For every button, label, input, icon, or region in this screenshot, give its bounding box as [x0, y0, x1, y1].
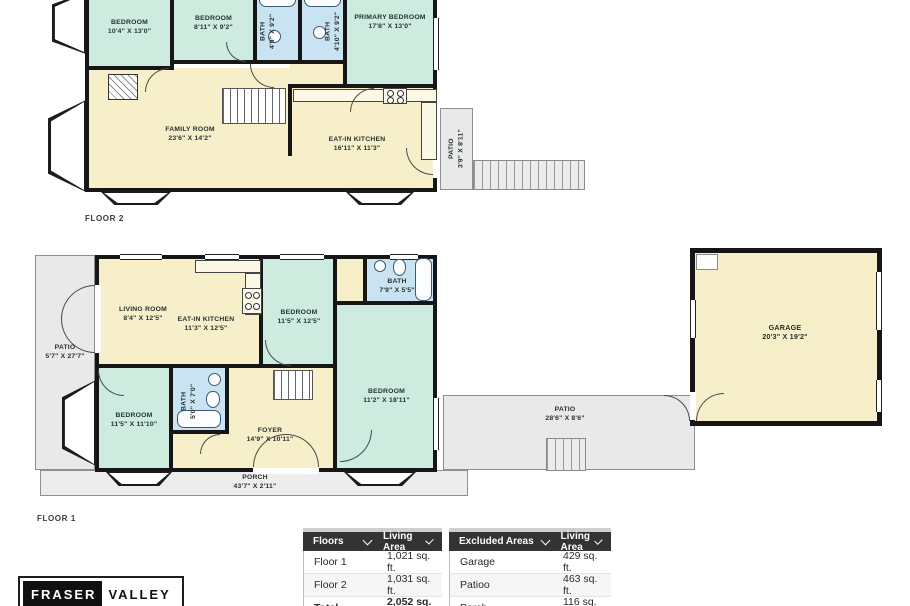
row-value: 429 sq. ft.	[546, 550, 603, 574]
burner-icon	[245, 303, 252, 310]
excluded-areas-table: Excluded Areas Living Area Garage 429 sq…	[449, 528, 611, 606]
window-icon	[120, 254, 162, 260]
stove-icon	[383, 88, 407, 104]
excluded-areas-header-label: Excluded Areas	[459, 536, 534, 547]
floors-table-header: Floors Living Area	[303, 532, 442, 551]
row-label: Floor 2	[314, 579, 376, 591]
window-icon	[390, 254, 418, 260]
floors-header-cell[interactable]: Floors	[313, 536, 373, 547]
bay-window-icon	[100, 191, 172, 205]
table-row-total: Total 2,052 sq. ft.	[303, 597, 442, 606]
wall	[288, 84, 437, 88]
window-icon	[433, 18, 439, 70]
chevron-down-icon[interactable]	[595, 536, 603, 544]
floor2-caption: FLOOR 2	[85, 214, 124, 223]
logo-part2: VALLEY	[102, 581, 178, 606]
door-opening	[95, 285, 101, 353]
bay-window-icon	[345, 191, 415, 205]
window-icon	[433, 398, 439, 450]
table-row: Floor 1 1,021 sq. ft.	[303, 551, 442, 574]
bathtub-icon	[304, 0, 341, 7]
toilet-icon	[206, 391, 220, 408]
burner-icon	[387, 97, 394, 104]
wall	[288, 88, 292, 156]
floor1-stairs	[273, 370, 313, 400]
bay-window-glass	[54, 0, 84, 52]
bay-window-glass	[347, 193, 413, 203]
wall	[298, 0, 302, 62]
burner-icon	[397, 97, 404, 104]
floor2-stairs	[222, 88, 286, 124]
row-label: Garage	[460, 556, 546, 568]
bay-window-icon	[48, 100, 86, 192]
logo-part1: FRASER	[23, 581, 102, 606]
row-value: 1,031 sq. ft.	[376, 573, 434, 597]
wall	[253, 0, 257, 62]
bay-window-glass	[64, 382, 94, 464]
bay-window-glass	[50, 102, 84, 190]
table-row: Floor 2 1,031 sq. ft.	[303, 574, 442, 597]
floorplan-page: BEDROOM 10'4" X 13'0" BEDROOM 8'11" X 9'…	[0, 0, 910, 606]
wall	[171, 430, 229, 434]
chevron-down-icon[interactable]	[540, 535, 550, 545]
floor2-patio	[440, 108, 473, 190]
sink-icon	[374, 260, 386, 272]
excluded-areas-header-cell[interactable]: Excluded Areas	[459, 536, 551, 547]
wall	[170, 0, 174, 68]
chevron-down-icon[interactable]	[425, 536, 434, 545]
floor1-caption: FLOOR 1	[37, 514, 76, 523]
wall	[337, 301, 437, 305]
burner-icon	[253, 292, 260, 299]
floor1-closet	[336, 255, 365, 303]
bathtub-icon	[259, 0, 296, 7]
toilet-icon	[393, 259, 406, 276]
burner-icon	[387, 90, 394, 97]
bay-window-icon	[52, 0, 86, 54]
door-opening	[253, 468, 319, 474]
wall	[95, 364, 337, 368]
bathtub-icon	[177, 410, 221, 428]
sink-icon	[268, 30, 281, 43]
row-value: 116 sq. ft.	[546, 596, 603, 606]
burner-icon	[253, 303, 260, 310]
row-label: Total	[314, 602, 376, 606]
bay-window-glass	[107, 473, 171, 484]
stove-icon	[242, 288, 262, 314]
window-icon	[690, 300, 696, 338]
table-row: Porch 116 sq. ft.	[449, 597, 611, 606]
door-opening	[690, 392, 696, 420]
window-icon	[876, 380, 882, 412]
excluded-table-header: Excluded Areas Living Area	[449, 532, 611, 551]
row-label: Floor 1	[314, 556, 376, 568]
row-label: Patioo	[460, 579, 546, 591]
floor2-primary-bedroom-room	[345, 0, 437, 88]
wall	[343, 0, 347, 88]
kitchen-counter	[195, 260, 261, 273]
sink-icon	[313, 26, 326, 39]
burner-icon	[397, 90, 404, 97]
bay-window-glass	[345, 473, 415, 484]
window-icon	[876, 272, 882, 330]
window-icon	[280, 254, 324, 260]
area-summary-table: Floors Living Area Floor 1 1,021 sq. ft.…	[303, 528, 611, 606]
fireplace-icon	[108, 74, 138, 100]
row-label: Porch	[460, 602, 546, 606]
row-value: 463 sq. ft.	[546, 573, 603, 597]
floors-table: Floors Living Area Floor 1 1,021 sq. ft.…	[303, 528, 442, 606]
table-row: Patioo 463 sq. ft.	[449, 574, 611, 597]
wall	[333, 255, 337, 470]
floors-header-label: Floors	[313, 536, 344, 547]
burner-icon	[245, 292, 252, 299]
sink-icon	[208, 373, 221, 386]
wall	[225, 366, 229, 434]
garage-corner-box	[696, 254, 718, 270]
row-value: 1,021 sq. ft.	[376, 550, 434, 574]
table-row: Garage 429 sq. ft.	[449, 551, 611, 574]
wall	[169, 368, 173, 468]
floor2-exterior-stairs	[473, 160, 585, 190]
patio-stairs	[546, 438, 586, 471]
row-value: 2,052 sq. ft.	[376, 596, 434, 606]
bathtub-icon	[415, 258, 432, 301]
floor2-bedroom1-room	[85, 0, 172, 68]
fraser-valley-logo: FRASER VALLEY	[18, 576, 184, 606]
bay-window-glass	[102, 193, 170, 203]
wall	[363, 255, 367, 305]
chevron-down-icon[interactable]	[363, 535, 373, 545]
